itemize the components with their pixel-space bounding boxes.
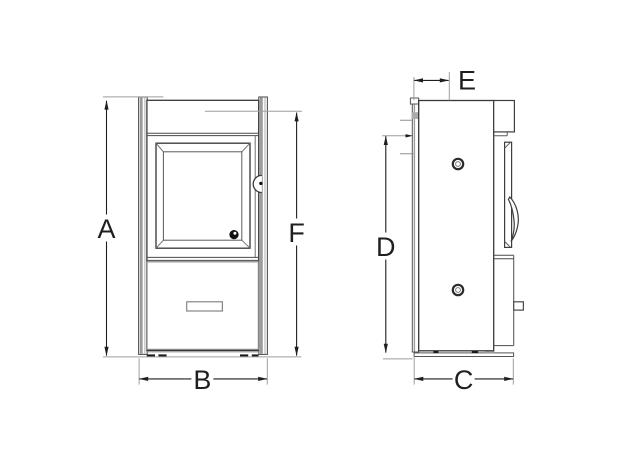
screw-inner <box>456 162 461 167</box>
arrow-up-icon <box>384 136 388 145</box>
arrow-right-icon <box>258 377 267 381</box>
dim-label-F: F <box>288 218 305 248</box>
side-knob <box>514 302 524 310</box>
dim-label-C: C <box>454 365 474 395</box>
arrow-up-icon <box>104 100 108 109</box>
door-bottom-band <box>494 255 514 258</box>
dim-label-A: A <box>97 214 115 244</box>
drawer-handle <box>187 302 223 311</box>
arrow-left-icon <box>414 377 423 381</box>
foot-icon <box>472 351 478 353</box>
arrow-right-icon <box>440 78 449 82</box>
arrow-down-icon <box>295 347 299 356</box>
dim-label-E: E <box>458 66 476 96</box>
dim-label-B: B <box>193 365 211 395</box>
foot-icon <box>485 351 495 353</box>
foot-icon <box>433 351 438 353</box>
arrow-up-icon <box>295 112 299 121</box>
door-handle-pin-icon <box>259 182 262 185</box>
drawer-front-profile <box>494 255 514 345</box>
front-base <box>147 352 259 357</box>
arrow-right-icon <box>504 377 513 381</box>
right-panel-shading <box>260 98 263 354</box>
stove-door <box>156 136 263 258</box>
arrow-down-icon <box>384 344 388 353</box>
air-control-knob-dot <box>233 232 236 235</box>
side-view <box>400 98 523 357</box>
side-base <box>414 351 513 357</box>
extension-line <box>414 72 449 100</box>
door-glass <box>163 152 241 240</box>
arrow-down-icon <box>104 347 108 356</box>
dimension-D: D <box>375 134 414 359</box>
dimension-C: C <box>414 356 514 395</box>
arrow-left-icon <box>414 78 423 82</box>
front-view <box>139 97 268 357</box>
left-panel-shading <box>140 98 143 354</box>
base-plate <box>414 353 513 357</box>
stove-body-side <box>419 101 494 351</box>
screw-inner <box>456 288 461 293</box>
ash-drawer <box>147 262 258 350</box>
flue-collar-slab <box>412 112 419 119</box>
dimension-E: E <box>414 66 476 101</box>
dimension-B: B <box>139 358 268 395</box>
stove-dimension-drawing: A F B E D <box>0 0 624 460</box>
right-side-panel <box>259 97 268 354</box>
left-side-panel <box>139 97 148 354</box>
back-panel-top-notch <box>410 98 418 104</box>
arrow-left-icon <box>139 377 148 381</box>
dim-label-D: D <box>376 232 396 262</box>
back-panel-outline <box>412 104 418 352</box>
air-control-knob-icon <box>229 230 238 239</box>
door-profile <box>494 101 524 346</box>
door-frame-bar <box>505 142 512 247</box>
door-top-band <box>494 101 515 132</box>
technical-drawing-canvas: A F B E D <box>0 0 624 460</box>
